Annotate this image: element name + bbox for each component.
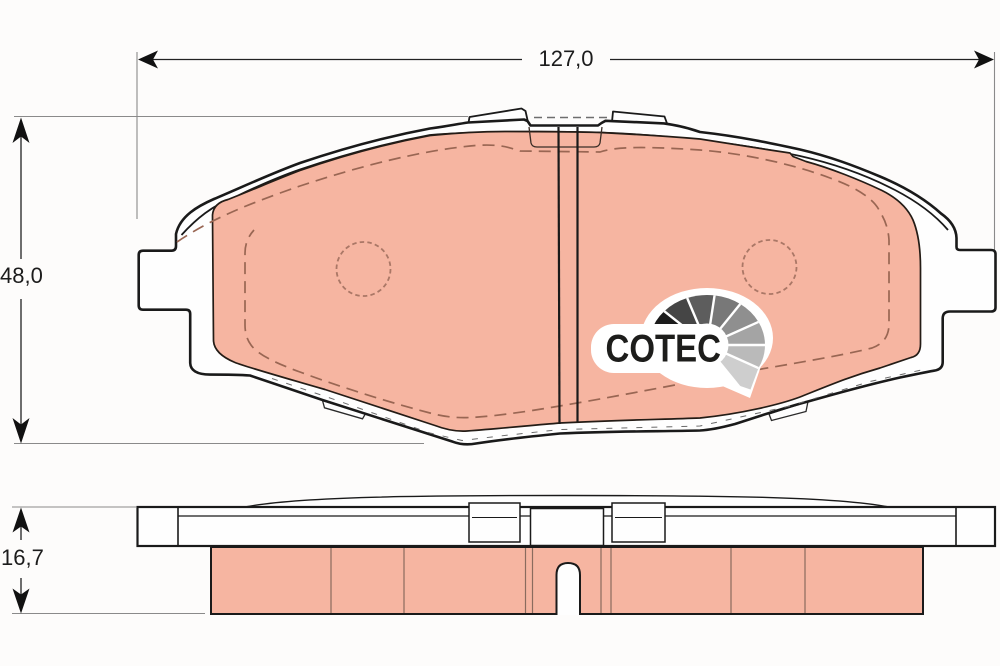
svg-text:COTEC: COTEC: [606, 328, 722, 371]
svg-text:48,0: 48,0: [0, 263, 43, 288]
svg-text:127,0: 127,0: [538, 46, 593, 71]
svg-text:16,7: 16,7: [1, 545, 44, 570]
